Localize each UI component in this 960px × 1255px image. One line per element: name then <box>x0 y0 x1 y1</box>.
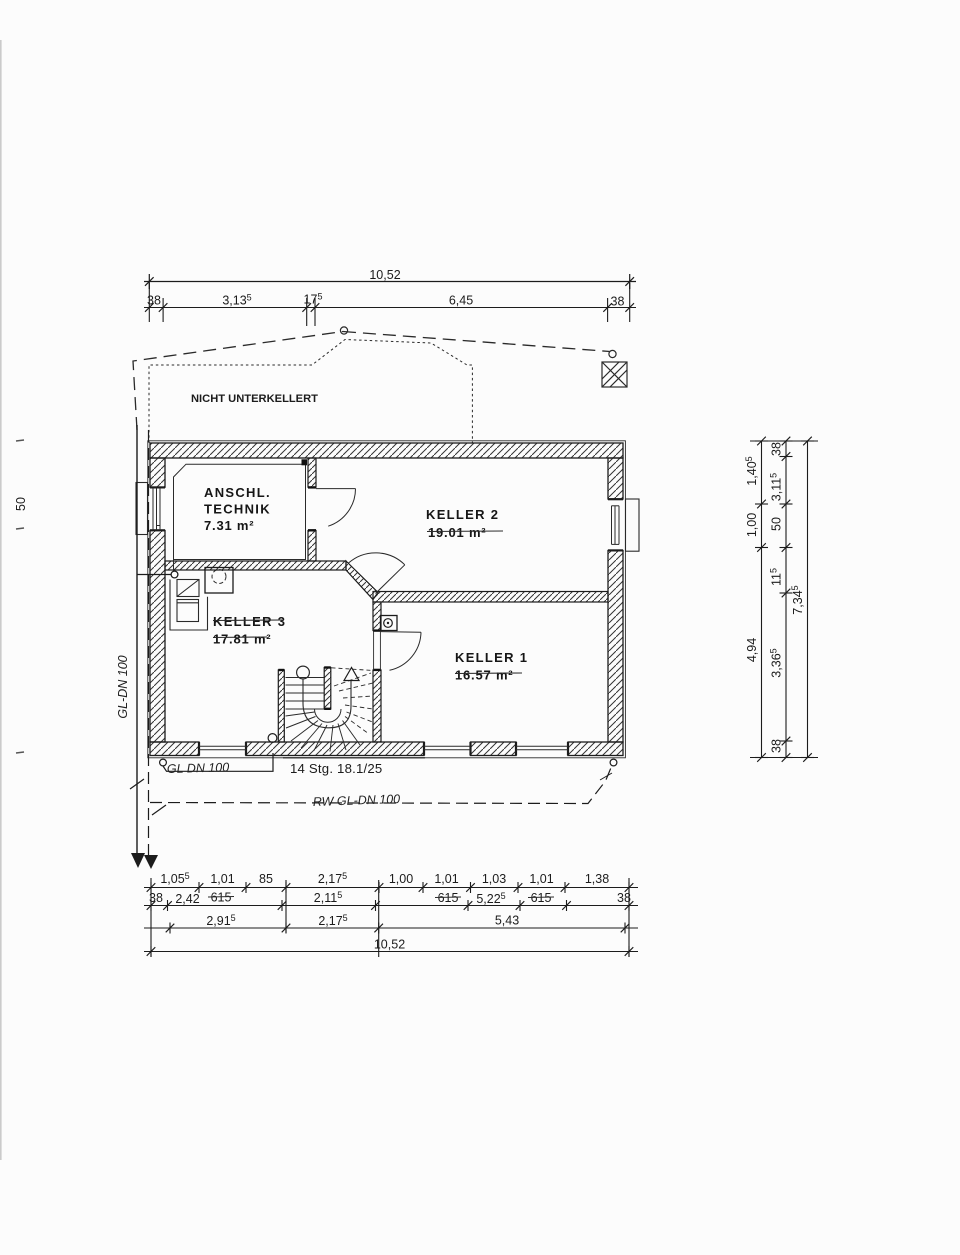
svg-text:7.31 m²: 7.31 m² <box>204 518 254 533</box>
svg-text:1,38: 1,38 <box>585 872 609 886</box>
svg-text:ANSCHL.: ANSCHL. <box>204 485 271 500</box>
svg-text:38: 38 <box>149 891 163 905</box>
svg-text:16.57 m²: 16.57 m² <box>455 668 513 683</box>
svg-text:38: 38 <box>770 739 784 753</box>
svg-text:38: 38 <box>611 295 625 309</box>
svg-text:615: 615 <box>531 891 552 905</box>
svg-text:615: 615 <box>438 891 459 905</box>
svg-text:GL DN 100: GL DN 100 <box>167 760 230 776</box>
svg-text:NICHT UNTERKELLERT: NICHT UNTERKELLERT <box>191 393 318 405</box>
svg-text:5,43: 5,43 <box>495 914 519 928</box>
svg-text:38: 38 <box>770 442 784 456</box>
svg-text:6,45: 6,45 <box>449 294 473 308</box>
svg-text:38: 38 <box>617 891 631 905</box>
svg-text:1,01: 1,01 <box>529 872 553 886</box>
svg-text:KELLER 1: KELLER 1 <box>455 650 528 665</box>
svg-text:1,01: 1,01 <box>434 872 458 886</box>
svg-text:19.01 m²: 19.01 m² <box>428 525 486 540</box>
svg-text:1,00: 1,00 <box>389 872 413 886</box>
svg-text:4,94: 4,94 <box>745 638 759 662</box>
svg-text:KELLER 2: KELLER 2 <box>426 507 499 522</box>
svg-text:1,03: 1,03 <box>482 872 506 886</box>
svg-text:615: 615 <box>211 891 232 905</box>
svg-text:85: 85 <box>259 872 273 886</box>
svg-text:10,52: 10,52 <box>369 268 400 282</box>
svg-text:TECHNIK: TECHNIK <box>204 502 271 517</box>
svg-text:GL-DN 100: GL-DN 100 <box>116 655 130 718</box>
svg-text:14 Stg. 18.1/25: 14 Stg. 18.1/25 <box>290 761 382 776</box>
svg-text:1,00: 1,00 <box>745 513 759 537</box>
svg-text:17.81 m²: 17.81 m² <box>213 632 271 647</box>
svg-text:1,01: 1,01 <box>210 872 234 886</box>
svg-text:50: 50 <box>770 517 784 531</box>
svg-text:2,42: 2,42 <box>175 892 199 906</box>
svg-text:10,52: 10,52 <box>374 938 405 952</box>
svg-text:38: 38 <box>147 294 161 308</box>
svg-text:50: 50 <box>14 497 28 511</box>
svg-text:KELLER 3: KELLER 3 <box>213 614 286 629</box>
